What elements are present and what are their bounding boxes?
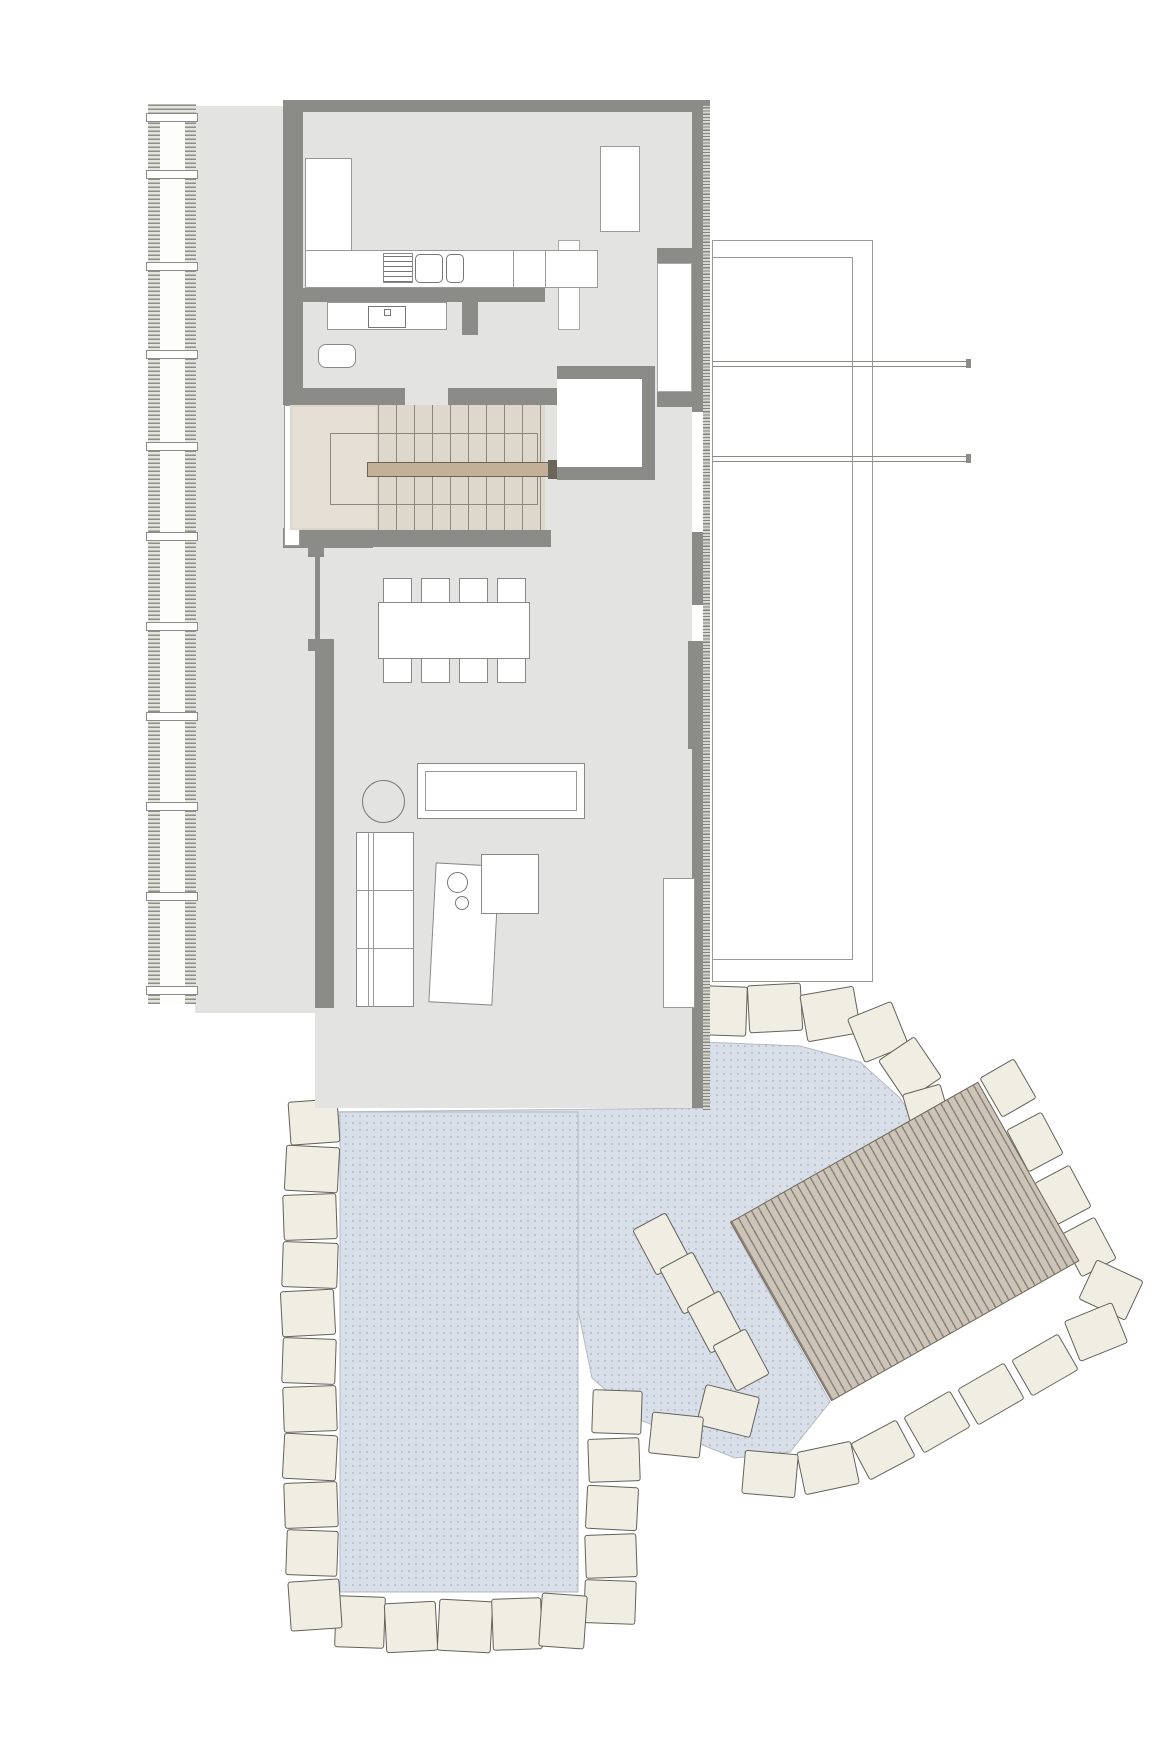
room-right-wall-right [642,366,655,480]
room-right-wall-top [557,366,655,379]
desk-plant-small [455,896,469,910]
yard-wall-1a [712,361,968,362]
yard-wall-2-cap [966,454,971,463]
side-table-round [362,780,405,823]
wall-left-lower [315,651,334,1008]
sofa-cushion-line-2 [356,948,414,949]
shaft [600,146,640,232]
window-right-lower [663,878,695,1008]
kitchen-counter-divider-2 [545,250,546,288]
sink-drainer [383,253,413,283]
chair-bottom-4 [497,658,526,683]
wall-stair-band-a [283,388,405,405]
wall-right-hatch [703,106,710,1110]
wall-pier-utility [462,302,478,335]
carport-outline-inner [712,257,853,960]
room-right-wall-bottom [557,467,655,480]
glazing-left [315,557,320,639]
chair-bottom-1 [383,658,412,683]
yard-wall-1b [712,366,968,367]
chair-bottom-3 [459,658,488,683]
kitchen-counter-divider-1 [513,250,514,288]
sofa-back-line-2 [373,832,374,1007]
yard-wall-1-cap [966,359,971,368]
chair-top-3 [459,578,488,603]
desk-plant-large [447,872,468,893]
sofa [356,832,414,1007]
media-sideboard-inner [425,771,577,811]
sink-basin-large [415,254,443,283]
chair-bottom-2 [421,658,450,683]
desk-side [481,854,539,914]
stair-handrail-cap [548,460,557,479]
chair-top-2 [421,578,450,603]
wall-top [283,100,710,112]
niche-arm-top [657,248,692,263]
yard-wall-2a [712,456,968,457]
mullion-left-2 [308,639,334,651]
chair-top-1 [383,578,412,603]
stair-handrail [367,462,555,477]
floor-plan-canvas [0,0,1170,1738]
door-opening-right [692,412,703,532]
building-layer [0,0,1170,1738]
kitchen-counter-vertical [305,158,352,253]
utility-wc [318,344,356,368]
wall-left-upper [283,112,303,388]
wall-pier-right [688,641,703,749]
room-right-fill [557,366,655,480]
sink-basin-small [446,254,464,283]
yard-wall-2b [712,461,968,462]
niche-interior [657,263,692,392]
wall-kitchen-band [283,288,545,302]
utility-switch [384,309,391,316]
niche-arm-bottom [657,392,692,407]
sofa-back-line-1 [368,832,369,1007]
dining-table [378,602,530,659]
sofa-cushion-line-1 [356,890,414,891]
chair-top-4 [497,578,526,603]
mullion-left-1 [308,546,324,557]
